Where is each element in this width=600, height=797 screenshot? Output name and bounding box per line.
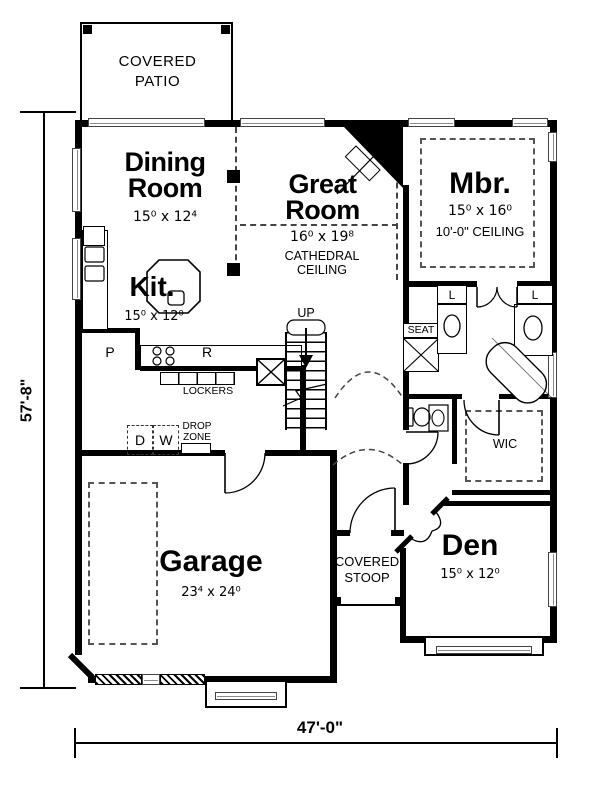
- window-top-mbr-2: [512, 118, 548, 127]
- covered-stoop-label: COVERED STOOP: [334, 554, 400, 585]
- kitchen-name: Kit.: [110, 272, 194, 301]
- master-bedroom-name: Mbr.: [430, 168, 530, 200]
- garage-bay-window: [215, 692, 277, 700]
- floor-plan: 57'-8" 47'-0": [0, 0, 600, 797]
- window-mbr-right: [548, 132, 557, 162]
- lockers-label: LOCKERS: [178, 386, 238, 397]
- overall-width-dimension: 47'-0": [270, 719, 370, 737]
- kitchen-cabinet-corner: [83, 226, 105, 246]
- drop-zone-bench: [181, 443, 211, 454]
- garage-window: [142, 674, 160, 685]
- refrigerator-label: R: [198, 345, 216, 360]
- chase-box: [256, 358, 286, 386]
- lockers-cabinet: [160, 372, 235, 385]
- stoop-post-right: [395, 597, 404, 606]
- vanity-right: [514, 304, 553, 356]
- washer-label: W: [157, 433, 175, 448]
- stoop-post-left: [332, 597, 341, 606]
- garage-door-arc: [225, 453, 265, 493]
- window-top-1: [240, 118, 325, 127]
- wall-wic-south: [452, 490, 557, 495]
- toilet-bowl: [414, 408, 430, 426]
- mbr-door-left-arc: [477, 287, 497, 307]
- overall-depth-dimension: 57'-8": [20, 365, 37, 435]
- great-room-arch: [335, 372, 403, 398]
- garage-dims: 23⁴ x 24⁰: [158, 586, 264, 600]
- dining-room-dims: 15⁰ x 12⁴: [110, 210, 220, 225]
- wall-master-west: [403, 185, 409, 285]
- powder-vanity: [429, 405, 448, 431]
- patio-post-right: [221, 25, 230, 34]
- dining-great-divider: [235, 127, 237, 270]
- width-tick-left: [74, 728, 76, 758]
- covered-patio-label: COVERED PATIO: [95, 52, 220, 91]
- garage-door-panel-2: [160, 674, 205, 685]
- wic-label: WIC: [486, 438, 524, 451]
- powder-sink: [432, 410, 444, 426]
- den-bay-window: [436, 646, 532, 654]
- den-door-leaf-1: [410, 531, 432, 542]
- dining-room-name: Dining Room: [100, 150, 230, 201]
- window-tub-right: [548, 352, 557, 398]
- kitchen-dims: 15⁰ x 12⁰: [102, 310, 206, 324]
- foyer-arch: [333, 450, 403, 466]
- dryer-label: D: [131, 433, 149, 448]
- shower-box: [403, 338, 439, 372]
- stoop-edge: [332, 604, 404, 606]
- garage-bay-outline: [88, 482, 158, 645]
- pantry-label: P: [100, 345, 120, 360]
- great-room-dims: 16⁰ x 19⁸: [262, 230, 382, 245]
- depth-tick-top: [20, 111, 76, 113]
- column-dining-2: [227, 263, 240, 276]
- width-tick-right: [556, 728, 558, 758]
- patio-slider-window: [88, 118, 205, 127]
- wall-hall-spine-lower: [403, 463, 409, 505]
- garage-door-panel-1: [95, 674, 142, 685]
- wall-powder-wic: [452, 396, 457, 464]
- great-room-ceiling-line-v: [396, 152, 398, 280]
- patio-post-left: [83, 25, 92, 34]
- wall-foyer-front-right: [391, 530, 404, 536]
- powder-door-arc: [406, 432, 438, 464]
- den-name: Den: [430, 530, 510, 562]
- linen-left-label: L: [445, 289, 459, 302]
- window-top-mbr-1: [408, 118, 455, 127]
- window-kitchen-left: [72, 238, 81, 300]
- wall-exterior-left-garage: [75, 455, 82, 655]
- stair-treads: [287, 332, 327, 430]
- drop-zone-label: DROP ZONE: [178, 421, 216, 443]
- window-den-right: [548, 552, 557, 607]
- great-room-note: CATHEDRAL CEILING: [270, 249, 374, 278]
- master-bedroom-note: 10'-0" CEILING: [418, 225, 542, 239]
- great-room-name: Great Room: [255, 172, 390, 223]
- linen-right-label: L: [528, 289, 542, 302]
- width-dimension-line: [75, 742, 557, 744]
- stairs-up-label: UP: [294, 307, 318, 320]
- depth-tick-bottom: [20, 687, 76, 689]
- wall-den-west: [400, 548, 406, 640]
- wall-den-north: [444, 501, 557, 506]
- depth-dimension-line: [43, 112, 45, 688]
- vanity-left: [437, 304, 467, 354]
- window-dining-left: [72, 148, 81, 212]
- front-door-arc: [350, 488, 395, 533]
- den-dims: 15⁰ x 12⁰: [420, 568, 520, 582]
- garage-name: Garage: [155, 546, 267, 578]
- wall-foyer-front-left: [336, 530, 350, 536]
- den-door-leaf-2: [432, 512, 441, 531]
- master-bedroom-dims: 15⁰ x 16⁰: [428, 204, 532, 219]
- shower-seat-label: SEAT: [404, 325, 438, 336]
- stair-rail-right: [325, 332, 327, 430]
